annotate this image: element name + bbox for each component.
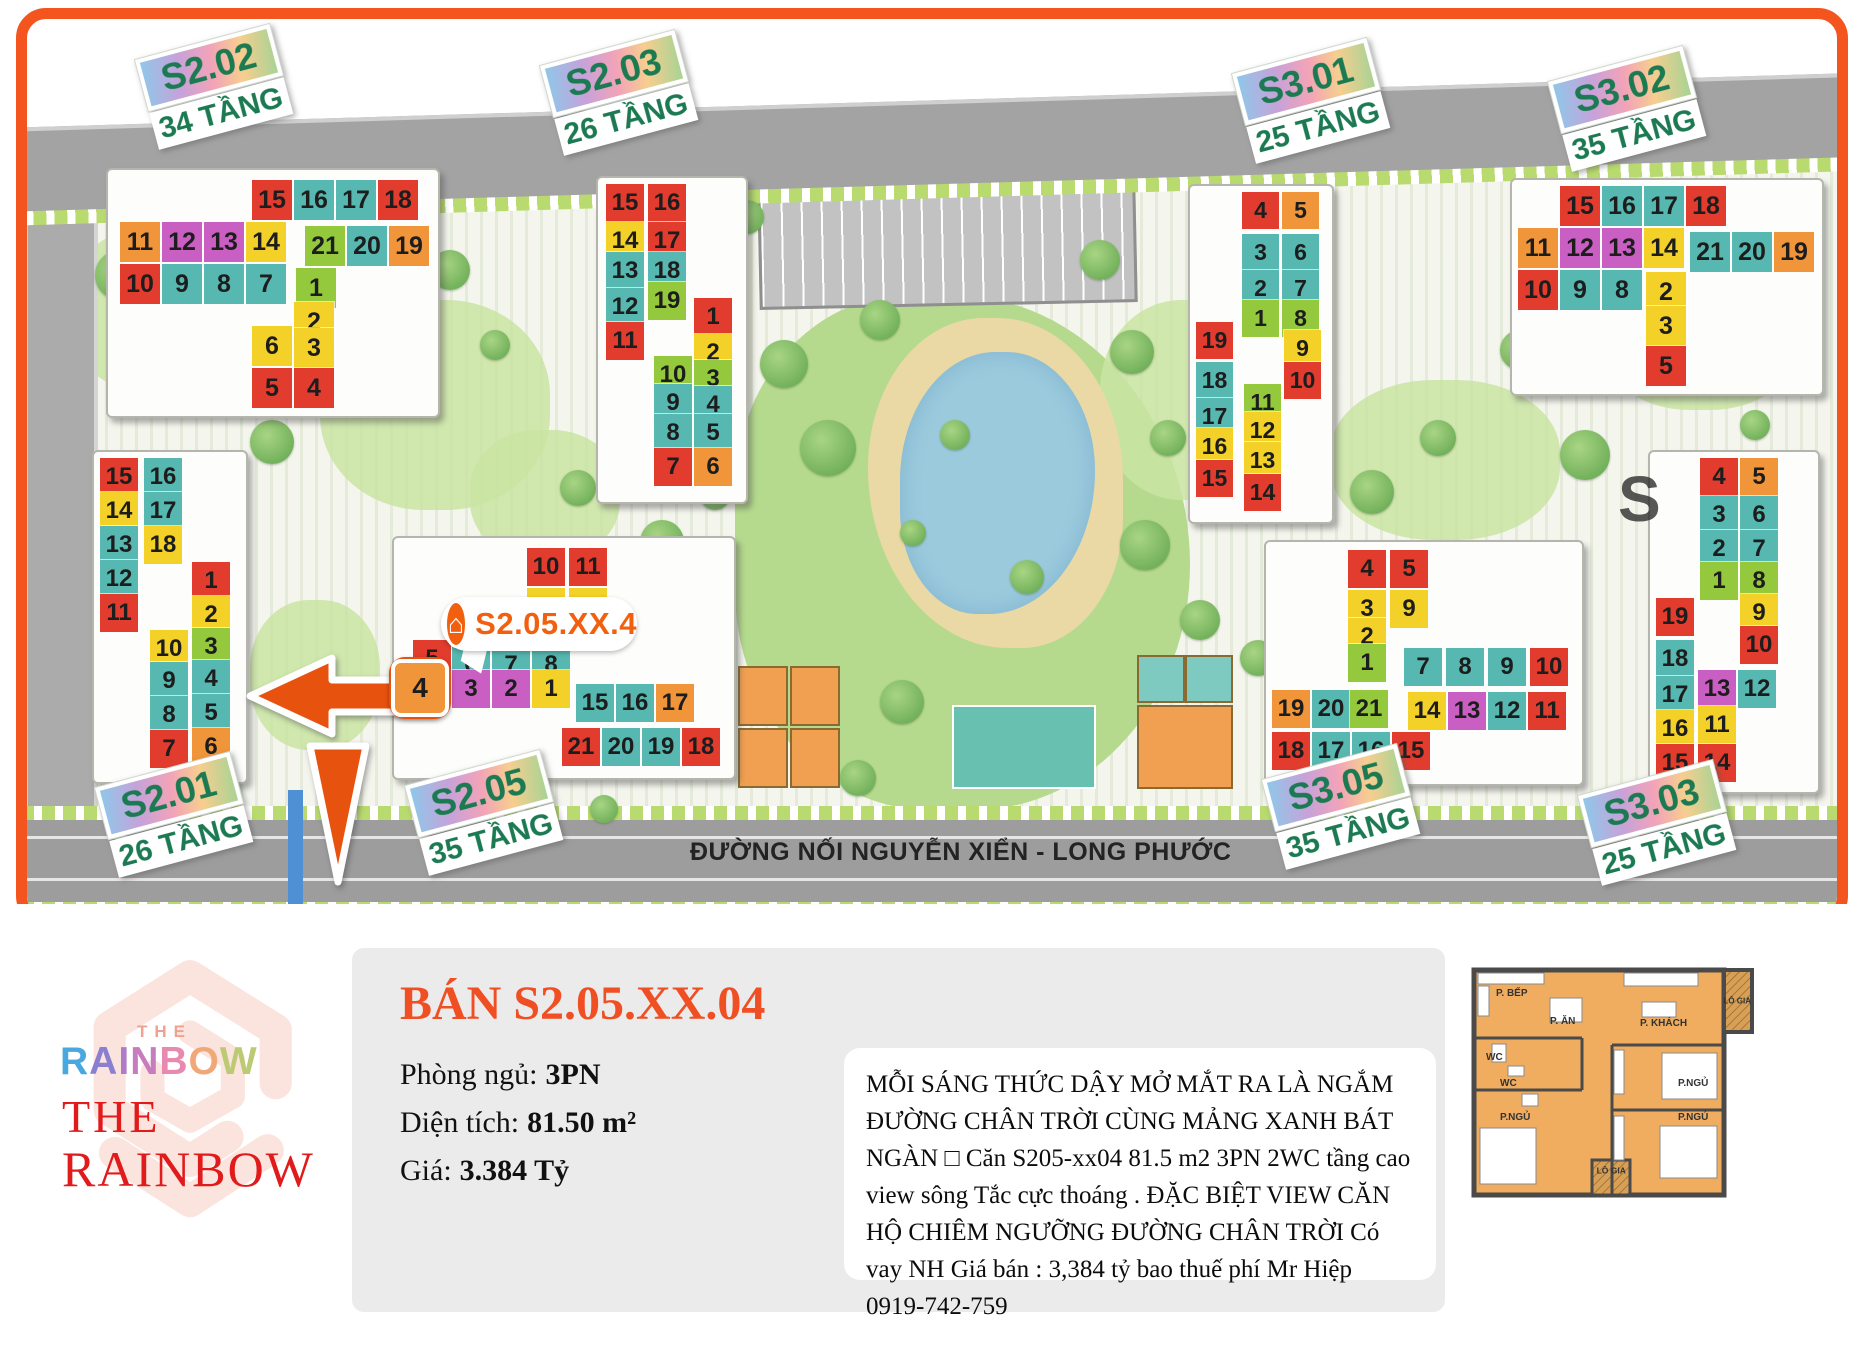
spec-label: Phòng ngủ: (400, 1058, 538, 1091)
unit-tile: 6 (252, 326, 292, 366)
tree-icon (1180, 600, 1220, 640)
listing-description: MỖI SÁNG THỨC DẬY MỞ MẮT RA LÀ NGẮM ĐƯỜN… (844, 1048, 1436, 1280)
spec-price: Giá:3.384 Tỷ (400, 1154, 569, 1188)
unit-tile: 21 (1350, 690, 1388, 728)
tree-icon (560, 470, 596, 506)
unit-tile: 20 (602, 728, 640, 766)
unit-tile: 4 (192, 660, 230, 698)
tree-icon (1010, 560, 1044, 594)
unit-tile: 5 (1390, 550, 1428, 588)
unit-tile: 5 (694, 414, 732, 452)
unit-tile: 14 (1244, 474, 1281, 511)
room-label: P. ĂN (1550, 1016, 1575, 1027)
unit-tile: 18 (682, 728, 720, 766)
logo-letter: W (220, 1040, 258, 1083)
unit-tile: 16 (1602, 186, 1642, 226)
unit-tile: 14 (246, 222, 286, 262)
court (1137, 655, 1185, 703)
unit-tile: 16 (616, 684, 654, 722)
unit-tile: 2 (492, 670, 530, 708)
unit-tile: 11 (100, 594, 138, 632)
tree-icon (1080, 240, 1120, 280)
unit-tile: 13 (1448, 692, 1486, 730)
annotation-label: S2.05.XX.4 (475, 606, 637, 642)
unit-tile: 4 (294, 368, 334, 408)
unit-tile: 11 (1698, 706, 1736, 744)
unit-tile: 11 (1528, 692, 1566, 730)
unit-tile: 16 (294, 180, 334, 220)
unit-tile: 17 (1644, 186, 1684, 226)
tree-icon (1350, 470, 1394, 514)
unit-tile: 6 (694, 448, 732, 486)
unit-tile: 8 (204, 264, 244, 304)
tree-icon (1110, 330, 1154, 374)
spec-bedrooms: Phòng ngủ:3PN (400, 1058, 601, 1092)
unit-tile: 9 (162, 264, 202, 304)
tree-icon (880, 680, 924, 724)
unit-tile: 17 (144, 492, 182, 530)
unit-tile: 21 (305, 226, 345, 266)
unit-tile: 1 (192, 562, 230, 600)
tree-icon (840, 760, 876, 796)
unit-tile: 8 (150, 696, 188, 734)
logo-the-red: THE (62, 1090, 160, 1143)
logo-the-small: THE (137, 1022, 192, 1042)
unit-tile: 9 (1390, 590, 1428, 628)
listing-title: BÁN S2.05.XX.04 (400, 976, 765, 1031)
unit-tile: 10 (527, 548, 565, 586)
house-icon: ⌂ (444, 600, 468, 648)
unit-tile: 3 (452, 670, 490, 708)
road-label: ĐƯỜNG NỐI NGUYỄN XIỂN - LONG PHƯỚC (690, 838, 1231, 867)
unit-tile: 15 (1196, 460, 1233, 497)
basketball-court (738, 728, 788, 788)
unit-tile: 1 (1242, 300, 1279, 337)
unit-tile: 16 (1656, 710, 1694, 748)
unit-tile: 8 (654, 414, 692, 452)
spec-label: Giá: (400, 1154, 452, 1187)
unit-tile: 18 (1272, 732, 1310, 770)
spec-value: 3.384 Tỷ (460, 1154, 569, 1187)
logo-letter: I (118, 1040, 130, 1083)
tree-icon (1560, 430, 1610, 480)
unit-tile: 14 (100, 492, 138, 530)
room-label: P.NGỦ (1678, 1112, 1708, 1123)
unit-tile: 1 (1700, 562, 1738, 600)
unit-tile: 19 (1196, 322, 1233, 359)
unit-tile: 18 (378, 180, 418, 220)
unit-tile: 4 (1700, 458, 1738, 496)
unit-tile: 12 (100, 560, 138, 598)
unit-tile: 12 (162, 222, 202, 262)
tennis-court (952, 705, 1096, 789)
unit-tile: 20 (1312, 690, 1350, 728)
unit-tile: 7 (654, 448, 692, 486)
unit-tile: 19 (389, 226, 429, 266)
unit-tile: 18 (1686, 186, 1726, 226)
info-panel: BÁN S2.05.XX.04 Phòng ngủ:3PN Diện tích:… (352, 948, 1445, 1312)
unit-tile: 20 (347, 226, 387, 266)
unit-tile: 5 (252, 368, 292, 408)
unit-tile: 8 (1446, 648, 1484, 686)
basketball-court (738, 666, 788, 726)
unit-tile: 7 (150, 730, 188, 768)
basketball-court (790, 666, 840, 726)
unit-tile: 21 (562, 728, 600, 766)
tree-icon (1740, 410, 1770, 440)
unit-tile: 9 (1488, 648, 1526, 686)
unit-tile: 15 (576, 684, 614, 722)
spec-value: 3PN (546, 1058, 601, 1091)
unit-tile: 11 (1518, 228, 1558, 268)
unit-tile: 7 (246, 264, 286, 304)
tree-icon (760, 340, 808, 388)
unit-tile: 11 (569, 548, 607, 586)
unit-tile: 5 (192, 694, 230, 732)
unit-tile: 3 (1700, 496, 1738, 534)
court (1185, 655, 1233, 703)
tree-icon (940, 420, 970, 450)
unit-tile: 10 (1740, 626, 1778, 664)
unit-tile: 4 (1242, 192, 1279, 229)
unit-tile: 3 (294, 328, 334, 368)
tree-icon (1120, 520, 1170, 570)
logo-rainbow-colored: RAINBOW (60, 1040, 258, 1084)
highlighted-unit: 4 (389, 657, 451, 719)
unit-tile: 13 (1602, 228, 1642, 268)
unit-tile: 15 (606, 184, 644, 222)
unit-tile: 14 (1408, 692, 1446, 730)
unit-tile: 19 (648, 282, 686, 320)
watermark-letter: S (1618, 462, 1661, 536)
room-label: WC (1486, 1052, 1503, 1063)
room-label: P. BẾP (1496, 988, 1528, 999)
tree-icon (250, 420, 294, 464)
unit-tile: 3 (1646, 306, 1686, 346)
unit-tile: 9 (1560, 270, 1600, 310)
tree-icon (860, 300, 900, 340)
tree-icon (590, 795, 618, 823)
listing-image: ĐƯỜNG NỐI NGUYỄN XIỂN - LONG PHƯỚC 15161… (0, 0, 1864, 1366)
unit-tile: 20 (1732, 232, 1772, 272)
unit-tile: 12 (606, 288, 644, 326)
unit-tile: 1 (532, 670, 570, 708)
unit-tile: 10 (120, 264, 160, 304)
room-label: LÔ GIA (1723, 997, 1751, 1006)
unit-tile: 12 (1560, 228, 1600, 268)
tree-icon (1420, 420, 1456, 456)
road-left (24, 150, 98, 830)
listing-footer: THE RAINBOW THE RAINBOW BÁN S2.05.XX.04 … (0, 904, 1864, 1366)
unit-tile: 5 (1282, 192, 1319, 229)
highlighted-unit-number: 4 (391, 659, 449, 717)
unit-tile: 7 (1404, 648, 1442, 686)
logo-letter: O (189, 1040, 220, 1083)
unit-tile: 19 (1272, 690, 1310, 728)
unit-tile: 13 (100, 526, 138, 564)
unit-tile: 4 (1348, 550, 1386, 588)
site-plan-frame: ĐƯỜNG NỐI NGUYỄN XIỂN - LONG PHƯỚC 15161… (16, 8, 1848, 926)
tree-icon (480, 330, 510, 360)
unit-tile: 9 (150, 662, 188, 700)
unit-tile: 8 (1602, 270, 1642, 310)
spec-area: Diện tích:81.50 m² (400, 1106, 636, 1140)
unit-tile: 17 (1656, 676, 1694, 714)
site-plan: ĐƯỜNG NỐI NGUYỄN XIỂN - LONG PHƯỚC 15161… (16, 8, 1848, 926)
unit-tile: 10 (1530, 648, 1568, 686)
room-label: P.NGỦ (1678, 1078, 1708, 1089)
unit-tile: 1 (694, 298, 732, 336)
room-label: WC (1500, 1078, 1517, 1089)
unit-tile: 18 (1656, 640, 1694, 678)
unit-tile: 11 (606, 322, 644, 360)
logo-letter: N (130, 1040, 159, 1083)
spec-value: 81.50 m² (527, 1106, 636, 1139)
arrow-down-icon (300, 736, 376, 888)
unit-tile: 5 (1646, 346, 1686, 386)
unit-tile: 15 (100, 458, 138, 496)
unit-tile: 14 (1644, 228, 1684, 268)
unit-tile: 17 (336, 180, 376, 220)
unit-tile: 11 (120, 222, 160, 262)
floorplan-image: P. BẾP P. ĂN P. KHÁCH LÔ GIA WC WC P.NGỦ… (1462, 960, 1762, 1205)
unit-tile: 3 (1242, 234, 1279, 271)
unit-annotation-bubble: ⌂ S2.05.XX.4 (441, 597, 637, 651)
unit-tile: 19 (1656, 598, 1694, 636)
tree-icon (900, 520, 926, 546)
unit-tile: 6 (1740, 496, 1778, 534)
spec-label: Diện tích: (400, 1106, 519, 1139)
unit-tile: 13 (204, 222, 244, 262)
unit-tile: 10 (1284, 362, 1321, 399)
unit-tile: 10 (1518, 270, 1558, 310)
logo-letter: B (159, 1040, 188, 1083)
basketball-court (1137, 705, 1233, 789)
room-label: LÔ GIA (1597, 1167, 1626, 1176)
unit-tile: 16 (144, 458, 182, 496)
unit-tile: 18 (144, 526, 182, 564)
unit-tile: 13 (606, 252, 644, 290)
lawn (1330, 380, 1560, 540)
unit-tile: 12 (1738, 670, 1776, 708)
unit-tile: 6 (1282, 234, 1319, 271)
brand-logo: THE RAINBOW THE RAINBOW (55, 944, 335, 1274)
room-label: P. KHÁCH (1640, 1018, 1687, 1029)
unit-tile: 16 (648, 184, 686, 222)
unit-tile: 13 (1698, 670, 1736, 708)
tree-icon (1150, 420, 1186, 456)
unit-tile: 17 (656, 684, 694, 722)
unit-tile: 18 (1196, 362, 1233, 399)
unit-tile: 12 (1488, 692, 1526, 730)
tree-icon (800, 420, 856, 476)
unit-tile: 19 (642, 728, 680, 766)
logo-letter: A (89, 1040, 118, 1083)
logo-letter: R (60, 1040, 89, 1083)
basketball-court (790, 728, 840, 788)
logo-rainbow-red: RAINBOW (62, 1140, 315, 1198)
unit-tile: 21 (1690, 232, 1730, 272)
unit-tile: 15 (1560, 186, 1600, 226)
unit-tile: 15 (252, 180, 292, 220)
unit-tile: 19 (1774, 232, 1814, 272)
unit-tile: 5 (1740, 458, 1778, 496)
room-label: P.NGỦ (1500, 1112, 1530, 1123)
unit-tile: 1 (1348, 644, 1386, 682)
